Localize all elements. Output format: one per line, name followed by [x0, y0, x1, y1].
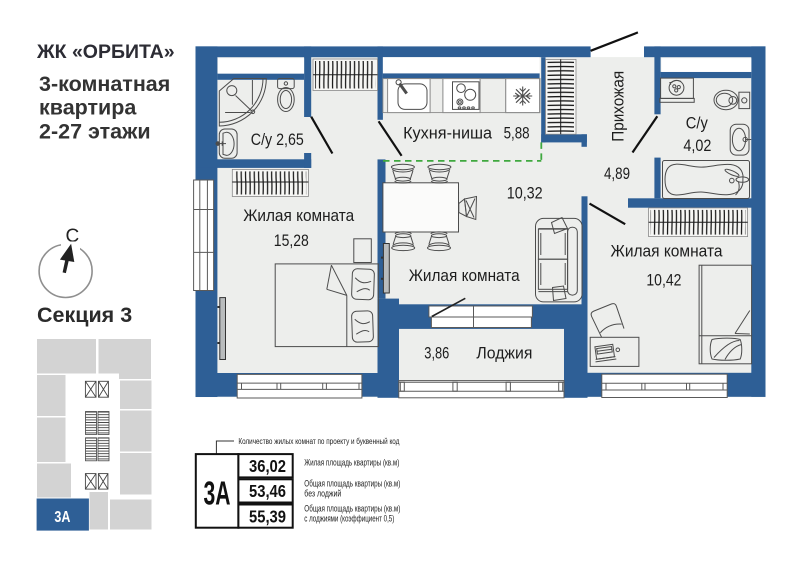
svg-text:15,28: 15,28: [274, 231, 309, 250]
svg-text:53,46: 53,46: [249, 481, 286, 501]
svg-text:10,42: 10,42: [646, 270, 681, 289]
svg-text:Секция 3: Секция 3: [37, 303, 132, 327]
svg-text:5,88: 5,88: [504, 124, 530, 143]
svg-text:Общая площадь квартиры (кв.м): Общая площадь квартиры (кв.м): [304, 504, 400, 514]
svg-text:Жилая комната: Жилая комната: [243, 206, 354, 225]
svg-text:Жилая площадь квартиры (кв.м): Жилая площадь квартиры (кв.м): [304, 458, 399, 468]
svg-text:Количество жилых комнат по про: Количество жилых комнат по проекту и бук…: [238, 437, 399, 446]
svg-text:Общая площадь квартиры (кв.м): Общая площадь квартиры (кв.м): [304, 479, 400, 489]
svg-text:10,32: 10,32: [507, 183, 543, 202]
svg-text:36,02: 36,02: [249, 456, 286, 476]
svg-text:55,39: 55,39: [249, 506, 286, 526]
svg-text:С/у 2,65: С/у 2,65: [251, 130, 304, 149]
svg-text:Лоджия: Лоджия: [476, 344, 532, 363]
svg-text:2-27 этажи: 2-27 этажи: [39, 119, 151, 143]
svg-text:Жилая комната: Жилая комната: [409, 266, 520, 285]
svg-text:Жилая комната: Жилая комната: [611, 242, 723, 261]
svg-text:ЖК «ОРБИТА»: ЖК «ОРБИТА»: [36, 41, 175, 63]
svg-text:без лоджий: без лоджий: [304, 489, 341, 499]
svg-text:квартира: квартира: [39, 96, 137, 120]
svg-text:3,86: 3,86: [424, 344, 449, 363]
svg-text:3А: 3А: [204, 475, 231, 512]
svg-text:Кухня-ниша: Кухня-ниша: [403, 124, 493, 143]
svg-text:Прихожая: Прихожая: [608, 71, 627, 142]
svg-text:3А: 3А: [54, 509, 70, 526]
svg-text:3-комнатная: 3-комнатная: [39, 72, 170, 96]
svg-text:4,02: 4,02: [683, 136, 711, 155]
svg-text:4,89: 4,89: [604, 164, 630, 183]
svg-text:с лоджиями (коэффициент 0,5): с лоджиями (коэффициент 0,5): [304, 514, 394, 524]
svg-text:С/у: С/у: [686, 114, 708, 133]
